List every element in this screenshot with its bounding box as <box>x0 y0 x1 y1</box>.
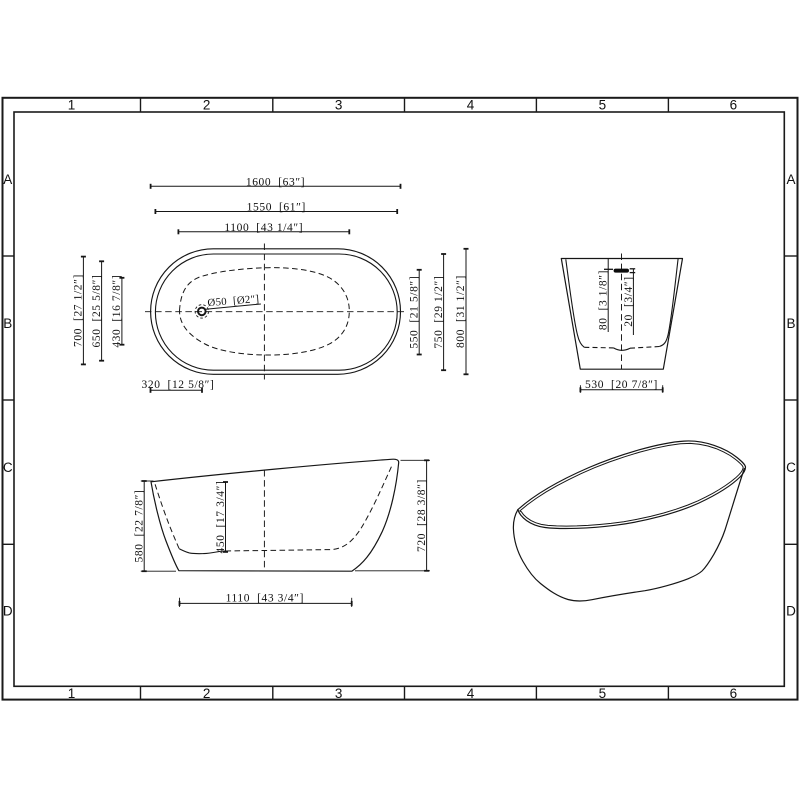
svg-text:1110 [43 3/4″]: 1110 [43 3/4″] <box>226 592 304 604</box>
svg-text:1: 1 <box>68 97 76 112</box>
svg-text:80 [3 1/8″]: 80 [3 1/8″] <box>597 270 609 330</box>
svg-text:5: 5 <box>599 686 607 701</box>
svg-text:6: 6 <box>730 686 738 701</box>
svg-text:2: 2 <box>203 686 211 701</box>
svg-text:720 [28 3/8″]: 720 [28 3/8″] <box>416 479 428 552</box>
svg-text:A: A <box>786 172 795 187</box>
svg-text:1600 [63″]: 1600 [63″] <box>246 176 305 188</box>
svg-text:B: B <box>786 316 795 331</box>
svg-text:4: 4 <box>467 686 475 701</box>
svg-text:5: 5 <box>599 97 607 112</box>
svg-text:650 [25 5/8″]: 650 [25 5/8″] <box>91 275 103 348</box>
svg-text:D: D <box>786 604 796 619</box>
svg-text:1550 [61″]: 1550 [61″] <box>247 202 306 214</box>
svg-text:Ø50 [Ø2″]: Ø50 [Ø2″] <box>207 293 260 309</box>
svg-text:580 [22 7/8″]: 580 [22 7/8″] <box>134 490 146 563</box>
svg-text:B: B <box>3 316 12 331</box>
svg-text:530 [20 7/8″]: 530 [20 7/8″] <box>585 379 658 391</box>
svg-text:C: C <box>786 460 796 475</box>
svg-text:430 [16 7/8″]: 430 [16 7/8″] <box>111 275 123 348</box>
svg-text:450 [17 3/4″]: 450 [17 3/4″] <box>215 481 227 554</box>
svg-text:1: 1 <box>68 686 76 701</box>
svg-text:2: 2 <box>203 97 211 112</box>
svg-text:A: A <box>3 172 12 187</box>
svg-text:800 [31 1/2″]: 800 [31 1/2″] <box>455 275 467 348</box>
svg-text:4: 4 <box>467 97 475 112</box>
svg-text:3: 3 <box>335 97 343 112</box>
svg-text:3: 3 <box>335 686 343 701</box>
svg-text:700 [27 1/2″]: 700 [27 1/2″] <box>73 274 85 347</box>
svg-text:750 [29 1/2″]: 750 [29 1/2″] <box>433 276 445 349</box>
svg-text:6: 6 <box>730 97 738 112</box>
svg-text:550 [21 5/8″]: 550 [21 5/8″] <box>408 276 420 349</box>
svg-text:320 [12 5/8″]: 320 [12 5/8″] <box>142 379 215 391</box>
svg-text:1100 [43 1/4″]: 1100 [43 1/4″] <box>224 222 303 234</box>
svg-text:20 [3/4″]: 20 [3/4″] <box>623 276 635 326</box>
svg-text:D: D <box>3 604 13 619</box>
svg-text:C: C <box>3 460 13 475</box>
